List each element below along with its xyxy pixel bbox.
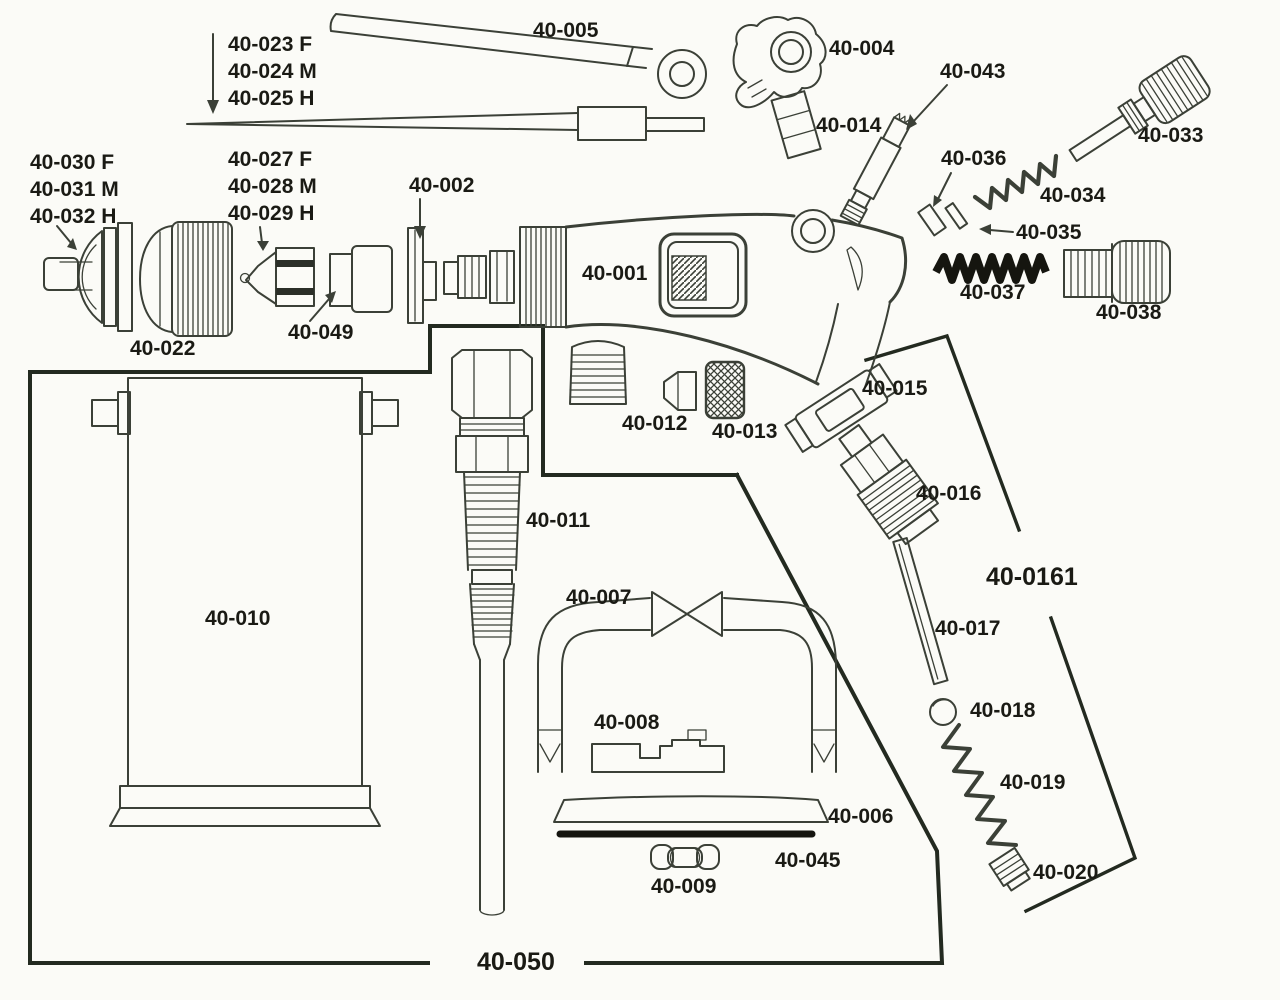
part-label-40-031: 40-031 M [30, 178, 119, 201]
label-arrow-40-043 [906, 85, 947, 130]
part-40-010-canister [92, 378, 398, 826]
part-label-40-002: 40-002 [409, 174, 474, 197]
part-label-40-049: 40-049 [288, 321, 353, 344]
part-40-020-plug [989, 848, 1033, 893]
part-label-40-011: 40-011 [526, 509, 591, 532]
part-label-40-0161: 40-0161 [986, 563, 1078, 591]
part-40-023-needle [187, 107, 704, 140]
part-40-001-gun-body [444, 210, 906, 390]
part-label-40-036: 40-036 [941, 147, 1006, 170]
part-40-011-suction-tube [452, 350, 532, 915]
part-40-036-seat [918, 203, 967, 235]
part-label-40-045: 40-045 [775, 849, 841, 872]
part-label-40-027: 40-027 F [228, 148, 312, 171]
needle-label-arrow [207, 34, 219, 114]
part-label-40-004: 40-004 [829, 37, 895, 60]
part-label-40-022: 40-022 [130, 337, 195, 360]
part-40-005-wrench [331, 14, 706, 98]
part-label-40-019: 40-019 [1000, 771, 1065, 794]
part-label-40-028: 40-028 M [228, 175, 317, 198]
part-label-40-024: 40-024 M [228, 60, 317, 83]
part-40-037-spring [936, 257, 1046, 280]
part-label-40-007: 40-007 [566, 586, 631, 609]
part-label-40-020: 40-020 [1033, 861, 1098, 884]
part-40-008-clip [592, 730, 724, 772]
part-label-40-013: 40-013 [712, 420, 777, 443]
part-label-40-010: 40-010 [205, 607, 270, 630]
label-arrow-40-030 [57, 226, 77, 250]
part-40-017-tube [893, 538, 947, 684]
part-label-40-014: 40-014 [816, 114, 882, 137]
part-label-40-050: 40-050 [477, 948, 555, 976]
part-40-049-baffle [330, 246, 392, 312]
part-40-006-cover [554, 796, 828, 822]
part-label-40-043: 40-043 [940, 60, 1005, 83]
part-label-40-029: 40-029 H [228, 202, 314, 225]
part-40-004-trigger [734, 17, 826, 107]
part-40-002-gasket [408, 228, 436, 323]
part-label-40-035: 40-035 [1016, 221, 1082, 244]
part-label-40-023: 40-023 F [228, 33, 312, 56]
part-40-038-knob [1064, 241, 1170, 303]
part-label-40-001: 40-001 [582, 262, 648, 285]
part-40-027-tip [241, 248, 315, 306]
part-40-022-ring [140, 222, 232, 336]
part-label-40-037: 40-037 [960, 281, 1025, 304]
part-label-40-009: 40-009 [651, 875, 716, 898]
label-arrow-40-002 [414, 199, 426, 239]
part-40-012-boss [570, 341, 626, 404]
part-label-40-016: 40-016 [916, 482, 981, 505]
part-label-40-030: 40-030 F [30, 151, 114, 174]
part-40-013-screen [706, 362, 744, 418]
part-label-40-034: 40-034 [1040, 184, 1106, 207]
label-arrow-40-036 [933, 173, 951, 207]
part-label-40-005: 40-005 [533, 19, 599, 42]
part-label-40-017: 40-017 [935, 617, 1000, 640]
part-label-40-038: 40-038 [1096, 301, 1162, 324]
label-arrow-40-035 [979, 224, 1013, 235]
label-arrow-40-027 [257, 227, 269, 251]
part-40-033-screw [1060, 53, 1213, 176]
part-label-40-025: 40-025 H [228, 87, 314, 110]
part-40-009-union [651, 845, 719, 869]
part-label-40-018: 40-018 [970, 699, 1036, 722]
part-label-40-033: 40-033 [1138, 124, 1203, 147]
part-label-40-006: 40-006 [828, 805, 893, 828]
part-cone-plug [664, 372, 696, 410]
part-label-40-008: 40-008 [594, 711, 660, 734]
part-40-018-ball [930, 699, 956, 725]
part-label-40-012: 40-012 [622, 412, 687, 435]
part-label-40-015: 40-015 [862, 377, 928, 400]
part-label-40-032: 40-032 H [30, 205, 116, 228]
spray-gun-exploded-diagram: 40-005 40-023 F 40-024 M 40-025 H 40-004… [0, 0, 1280, 1000]
part-40-030-aircap [44, 223, 132, 331]
part-40-007-bail [538, 592, 836, 772]
part-40-014-valve [772, 91, 915, 225]
